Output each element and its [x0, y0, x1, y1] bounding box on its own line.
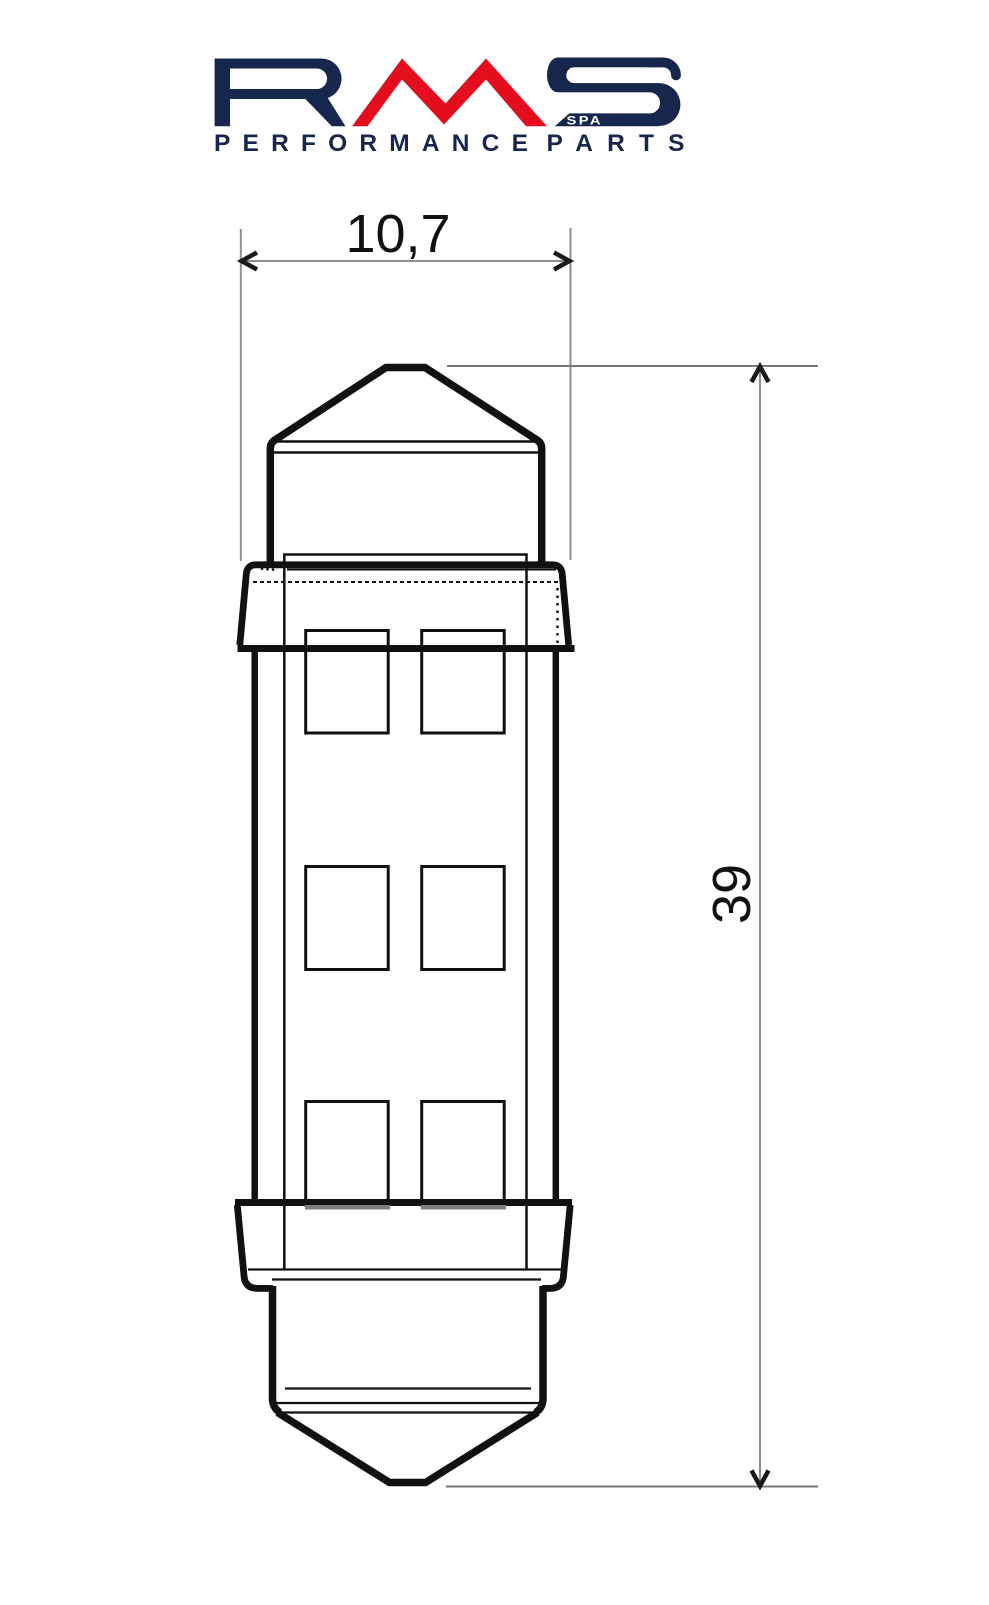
svg-text:PERFORMANCE: PERFORMANCE: [214, 130, 540, 157]
svg-text:SPA: SPA: [567, 114, 604, 128]
svg-text:PARTS: PARTS: [547, 130, 699, 157]
svg-text:39: 39: [702, 864, 762, 924]
svg-text:10,7: 10,7: [345, 204, 450, 264]
